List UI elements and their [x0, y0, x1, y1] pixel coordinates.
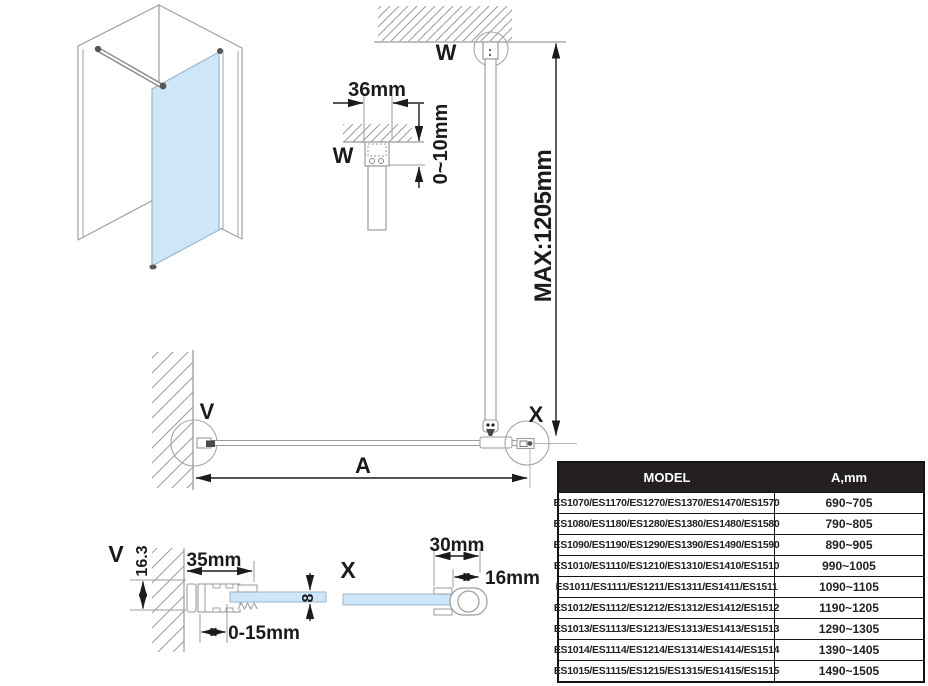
a-cell: 1090~1105: [775, 577, 923, 597]
dim-wall-profile-height: 16.3: [134, 545, 151, 576]
ceiling-bracket-detail: [365, 142, 389, 166]
dim-adjustment-range: 0-15mm: [228, 623, 300, 644]
a-cell: 890~905: [775, 535, 923, 555]
glass-panel-plan: [211, 441, 518, 446]
bar-wall-fitting: [95, 46, 101, 52]
bracket-screw: [370, 159, 375, 164]
dim-wall-profile-depth: 35mm: [187, 550, 242, 571]
dim-width-letter: A: [355, 453, 371, 478]
bracket-screw: [379, 159, 384, 164]
table-row: ES1090/ES1190/ES1290/ES1390/ES1490/ES159…: [559, 534, 923, 555]
ceiling-hatch: [378, 6, 512, 41]
detail-v: V 16.3 35mm 8 0-15mm: [108, 541, 326, 652]
glass-edge-profile: [219, 50, 223, 230]
ceiling-hatch-small: [343, 124, 412, 142]
technical-drawing-canvas: 36mm 0~10mm W MAX:1205mm W: [0, 0, 928, 686]
model-cell: ES1015/ES1115/ES1215/ES1315/ES1415/ES151…: [559, 661, 775, 681]
glass-top-fitting: [217, 48, 223, 54]
table-header-row: MODEL A,mm: [559, 463, 923, 492]
label-x-plan: X: [529, 402, 544, 427]
clamp-serration: [238, 603, 257, 609]
model-cell: ES1080/ES1180/ES1280/ES1380/ES1480/ES158…: [559, 514, 775, 534]
detail-x: X 30mm 16mm: [340, 535, 540, 615]
wall-hatch-detail-v: [152, 548, 184, 652]
dim-support-bar-max: MAX:1205mm: [530, 150, 557, 302]
table-row: ES1012/ES1112/ES1212/ES1312/ES1412/ES151…: [559, 597, 923, 618]
model-cell: ES1010/ES1110/ES1210/ES1310/ES1410/ES151…: [559, 556, 775, 576]
dim-ceiling-bracket-width: 36mm: [348, 79, 406, 101]
a-cell: 790~805: [775, 514, 923, 534]
end-profile-bar-hole: [458, 591, 479, 612]
table-row: ES1080/ES1180/ES1280/ES1380/ES1480/ES158…: [559, 513, 923, 534]
support-bar-detail: [368, 166, 386, 230]
label-v-plan: V: [200, 399, 215, 424]
table-row: ES1010/ES1110/ES1210/ES1310/ES1410/ES151…: [559, 555, 923, 576]
glass-foot: [149, 265, 156, 270]
table-row: ES1011/ES1111/ES1211/ES1311/ES1411/ES151…: [559, 576, 923, 597]
support-bar-elevation: [485, 59, 496, 421]
table-row: ES1013/ES1113/ES1213/ES1313/ES1413/ES151…: [559, 618, 923, 639]
a-cell: 690~705: [775, 493, 923, 513]
model-cell: ES1011/ES1111/ES1211/ES1311/ES1411/ES151…: [559, 577, 775, 597]
a-cell: 1390~1405: [775, 640, 923, 660]
table-row: ES1015/ES1115/ES1215/ES1315/ES1415/ES151…: [559, 660, 923, 681]
end-profile-top-lip: [434, 588, 452, 594]
dim-end-profile-tube: 16mm: [485, 568, 540, 589]
model-cell: ES1013/ES1113/ES1213/ES1313/ES1413/ES151…: [559, 619, 775, 639]
a-cell: 1490~1505: [775, 661, 923, 681]
isometric-view: [78, 4, 242, 269]
end-profile-bottom-lip: [434, 609, 452, 615]
a-cell: 990~1005: [775, 556, 923, 576]
plan-view: A V X: [152, 350, 577, 490]
clamp-top-lip: [238, 585, 257, 592]
model-table: MODEL A,mm ES1070/ES1170/ES1270/ES1370/E…: [557, 461, 925, 683]
table-row: ES1070/ES1170/ES1270/ES1370/ES1470/ES157…: [559, 492, 923, 513]
table-header-a: A,mm: [775, 470, 923, 485]
label-x-detail: X: [340, 557, 356, 583]
label-w-detail: W: [333, 143, 354, 168]
label-v-detail: V: [108, 541, 124, 567]
model-cell: ES1070/ES1170/ES1270/ES1370/ES1470/ES157…: [559, 493, 775, 513]
left-wall: [78, 5, 159, 240]
model-cell: ES1090/ES1190/ES1290/ES1390/ES1490/ES159…: [559, 535, 775, 555]
bar-connector-block: [480, 437, 512, 448]
label-w-elevation: W: [436, 40, 457, 65]
dim-ceiling-clearance: 0~10mm: [430, 104, 452, 185]
table-header-model: MODEL: [559, 470, 775, 485]
glass-panel-detail-x: [343, 594, 455, 605]
a-cell: 1290~1305: [775, 619, 923, 639]
model-cell: ES1012/ES1112/ES1212/ES1312/ES1412/ES151…: [559, 598, 775, 618]
a-cell: 1190~1205: [775, 598, 923, 618]
table-row: ES1014/ES1114/ES1214/ES1314/ES1414/ES151…: [559, 639, 923, 660]
wall-plate: [187, 584, 196, 612]
dim-end-profile-depth: 30mm: [430, 535, 485, 556]
dim-glass-thickness: 8: [300, 593, 317, 602]
ceiling-detail-w: 36mm 0~10mm W: [333, 79, 452, 230]
wall-hatch-plan: [152, 352, 193, 488]
elevation-view: MAX:1205mm W: [374, 6, 566, 436]
bar-glass-fitting: [160, 83, 167, 90]
model-cell: ES1014/ES1114/ES1214/ES1314/ES1414/ES151…: [559, 640, 775, 660]
